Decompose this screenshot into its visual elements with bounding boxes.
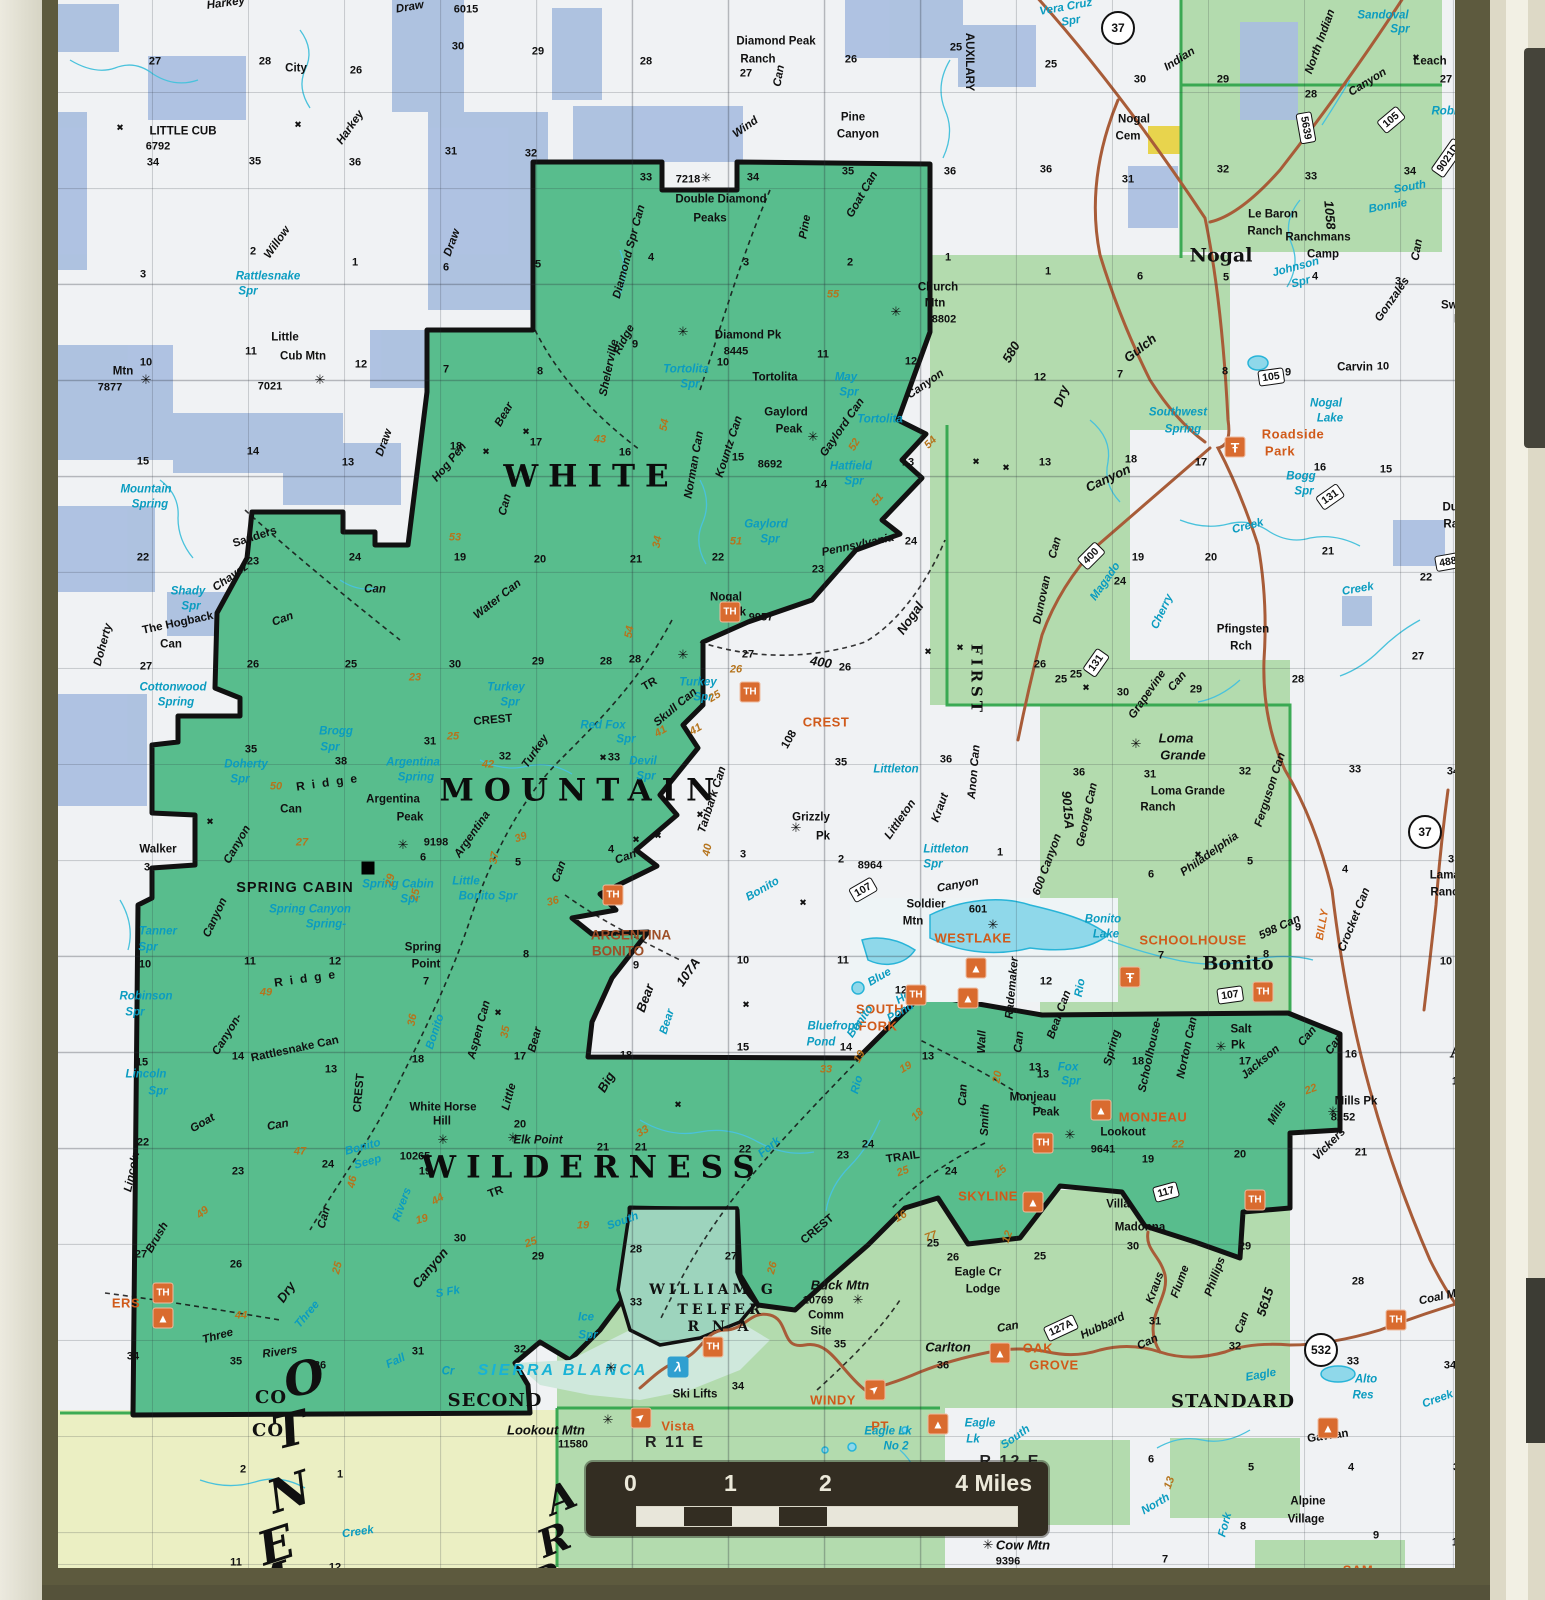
mine-marker: ✖ [599, 753, 607, 764]
map-label: 26 [247, 660, 259, 671]
map-label: Can [958, 1084, 970, 1106]
th-icon: TH [706, 1342, 719, 1353]
map-label: 36 [1040, 165, 1052, 176]
map-label: 9 [1285, 368, 1291, 379]
camp-icon: ▲ [994, 1346, 1006, 1360]
map-label: Ranch [1430, 887, 1455, 899]
mine-marker: ✖ [742, 1000, 750, 1011]
mine-icon: ✖ [972, 457, 980, 468]
th-marker: TH [1033, 1133, 1054, 1154]
th-marker: TH [720, 602, 741, 623]
map-label: Nogal [1190, 247, 1253, 266]
map-label: 16 [1314, 463, 1326, 474]
map-label: CREST [803, 716, 850, 729]
map-label: Vista [661, 1420, 694, 1433]
mine-icon: ✖ [494, 1008, 502, 1019]
map-label: 31 [445, 147, 457, 158]
map-label: 3 [1395, 277, 1401, 288]
map-label: Spr [680, 379, 699, 391]
map-label: Canyon [837, 129, 879, 141]
peak-icon: ✳ [606, 1360, 617, 1376]
map-label: 28 [629, 655, 641, 666]
map-label: Pk [816, 831, 830, 843]
map-label: 38 [335, 757, 347, 768]
map-label: ARGENTINA [591, 928, 671, 942]
map-label: 14 [840, 1043, 852, 1054]
map-label: 17 [514, 1052, 526, 1063]
map-label: Site [810, 1326, 831, 1338]
map-label: 17 [1195, 458, 1207, 469]
map-label: 35 [842, 167, 854, 178]
map-label: 29 [1239, 1242, 1251, 1253]
map-label: 33 [1347, 1357, 1359, 1368]
map-label: 10 [717, 358, 729, 369]
map-label: Ski Lifts [673, 1389, 718, 1401]
map-label: 3 [743, 258, 749, 269]
peak-marker: ✳ [701, 170, 712, 186]
map-label: FIRST [969, 644, 984, 716]
peak-marker: ✳ [853, 1292, 864, 1308]
mine-icon: ✖ [956, 643, 964, 654]
map-label: 10769 [803, 1296, 834, 1307]
map-label: 13 [902, 458, 914, 469]
map-label: Wall [977, 1030, 989, 1054]
map-label: 6 [1148, 870, 1154, 881]
highway-shield: 532 [1304, 1333, 1338, 1367]
scale-bar-segment [684, 1507, 732, 1526]
map-label: 6 [443, 263, 449, 274]
map-label: 43 [594, 435, 606, 446]
map-label: 22 [739, 1145, 751, 1156]
scale-bar: 4 Miles 012 [586, 1462, 1048, 1536]
map-label: 22 [712, 553, 724, 564]
map-label: Spr [923, 859, 942, 871]
peak-marker: ✳ [508, 1130, 519, 1146]
map-label: 34 [1444, 1361, 1455, 1372]
map-label: 12 [1040, 977, 1052, 988]
map-label: Can [160, 639, 182, 651]
camp-marker: ▲ [1318, 1418, 1339, 1439]
map-label: SKYLINE [958, 1190, 1018, 1203]
map-label: 7 [1117, 370, 1123, 381]
map-label: Gaylord [744, 519, 787, 531]
map-label: 3 [144, 863, 150, 874]
map-label: 7877 [98, 383, 122, 394]
map-label: 7021 [258, 382, 282, 393]
map-label: 9198 [424, 838, 448, 849]
map-label: 34 [127, 1352, 139, 1363]
map-label: 30 [1127, 1242, 1139, 1253]
map-label: Sandoval [1357, 10, 1408, 22]
map-label: Pine [841, 112, 865, 124]
map-label: 36 [1073, 768, 1085, 779]
scale-bar-segment [732, 1507, 779, 1526]
map-label: 5 [1223, 273, 1229, 284]
camp-marker: ▲ [928, 1414, 949, 1435]
map-label: 32 [1239, 767, 1251, 778]
map-label: Hatfield [830, 461, 872, 473]
mine-marker: ✖ [1412, 53, 1420, 64]
map-label: Cow Mtn [996, 1539, 1050, 1552]
map-label: Soldier [907, 899, 946, 911]
map-label: Littleton [873, 764, 918, 776]
map-label: 34 [652, 535, 665, 549]
map-label: Mtn [903, 916, 923, 928]
picnic-marker: Ŧ [1120, 967, 1141, 988]
peak-icon: ✳ [398, 837, 409, 853]
map-label: Spr [138, 942, 157, 954]
map-label: 1 [337, 1470, 343, 1481]
map-label: 3 [1448, 855, 1454, 866]
map-label: Rattlesnake [236, 271, 301, 283]
map-label: 34 [732, 1382, 744, 1393]
map-label: Spr [578, 1330, 597, 1342]
peak-icon: ✳ [891, 304, 902, 320]
map-label: 24 [862, 1140, 874, 1151]
mine-marker: ✖ [956, 643, 964, 654]
map-label: 25 [1034, 1252, 1046, 1263]
camp-icon: ▲ [1027, 1195, 1039, 1209]
map-label: Mtn [925, 298, 945, 310]
map-label: Spr [844, 476, 863, 488]
map-label: 10 [140, 358, 152, 369]
map-label: 33 [1349, 765, 1361, 776]
map-label: 7 [443, 365, 449, 376]
th-marker: TH [1245, 1190, 1266, 1211]
map-label: Ranch [740, 54, 775, 66]
map-label: 4 [1348, 1463, 1354, 1474]
camp-marker: ▲ [1091, 1100, 1112, 1121]
peak-marker: ✳ [678, 324, 689, 340]
mine-marker: ✖ [1002, 463, 1010, 474]
map-label: 27 [725, 1252, 737, 1263]
map-label: GROVE [1029, 1359, 1078, 1372]
map-label: Spring Cabin [362, 879, 434, 891]
map-label: 25 [1045, 60, 1057, 71]
map-label: 34 [747, 173, 759, 184]
camp-icon: ▲ [1095, 1103, 1107, 1117]
picnic-icon: Ŧ [1231, 439, 1240, 455]
map-label: Dutton [1442, 502, 1455, 514]
map-label: Eagle [965, 1418, 996, 1430]
map-label: Spring- [306, 919, 346, 931]
map-label: Nogal [1310, 398, 1342, 410]
map-label: Can [364, 584, 386, 596]
map-label: SIERRA BLANCA [478, 1363, 649, 1379]
map-label: 24 [1114, 577, 1126, 588]
map-label: 5 [535, 260, 541, 271]
map-label: 30 [1134, 75, 1146, 86]
map-label: 13 [342, 458, 354, 469]
map-label: Spring [398, 772, 434, 784]
map-label: Ranchmans [1285, 232, 1350, 244]
mine-marker: ✖ [522, 427, 530, 438]
map-label: Point [412, 959, 441, 971]
sq-marker [362, 862, 375, 875]
map-label: 9015A [1060, 790, 1076, 829]
peak-icon: ✳ [988, 917, 999, 933]
map-label: Lincoln [126, 1069, 167, 1081]
map-label: 601 [969, 905, 987, 916]
map-label: 31 [412, 1347, 424, 1358]
map-label: Spr [1390, 24, 1409, 36]
mine-marker: ✖ [482, 447, 490, 458]
map-label: 1058 [1322, 200, 1337, 230]
mine-marker: ✖ [696, 810, 704, 821]
map-label: 10 [1452, 1538, 1455, 1549]
map-label: 12 [1034, 373, 1046, 384]
th-icon: TH [1036, 1138, 1049, 1149]
map-label: 5 [515, 858, 521, 869]
mine-icon: ✖ [1082, 683, 1090, 694]
camp-icon: ▲ [157, 1311, 169, 1325]
map-frame-border-bottom [42, 1585, 1490, 1600]
peak-marker: ✳ [438, 1132, 449, 1148]
map-label: Lookout Mtn [507, 1424, 585, 1437]
map-label: AUXILARY [962, 33, 974, 91]
map-label: Mountain [120, 484, 171, 496]
map-label: Peaks [693, 213, 726, 225]
map-label: Red Fox [580, 720, 625, 732]
map-label: Tortolita [752, 372, 797, 384]
map-label: Carvin [1337, 362, 1373, 374]
mine-marker: ✖ [1194, 850, 1202, 861]
map-label: Cottonwood [139, 682, 206, 694]
map-label: Shady [171, 586, 206, 598]
th-marker: TH [603, 885, 624, 906]
map-label: 36 [940, 755, 952, 766]
map-label: Hill [1454, 314, 1455, 326]
map-label: Ranch [1443, 519, 1455, 531]
map-label: 22 [1172, 1140, 1184, 1151]
map-label: Park [1265, 445, 1295, 458]
map-label: 5 [1248, 1463, 1254, 1474]
peak-marker: ✳ [398, 837, 409, 853]
map-label: Alpine [1290, 1496, 1325, 1508]
camp-marker: ▲ [990, 1343, 1011, 1364]
ski-icon: λ [674, 1360, 681, 1375]
map-label: 22 [137, 553, 149, 564]
map-label: 1 [945, 253, 951, 264]
camp-marker: ▲ [1023, 1192, 1044, 1213]
camp-icon: ▲ [962, 991, 974, 1005]
map-label: Cr [442, 1366, 455, 1378]
map-label: 2 [847, 258, 853, 269]
map-label: 10 [737, 956, 749, 967]
map-label: 4 [608, 845, 614, 856]
th-icon: TH [1248, 1195, 1261, 1206]
peak-icon: ✳ [678, 647, 689, 663]
mine-icon: ✖ [206, 817, 214, 828]
map-label: Loma Grande [1151, 786, 1225, 798]
map-label: TELFER [677, 1303, 764, 1317]
picnic-marker: Ŧ [1225, 437, 1246, 458]
map-label: WILLIAM G [649, 1283, 777, 1297]
peak-marker: ✳ [678, 647, 689, 663]
map-label: 32 [525, 149, 537, 160]
map-label: 11 [245, 347, 257, 358]
map-label: 29 [532, 1252, 544, 1263]
map-label: 22 [137, 1138, 149, 1149]
scale-bar-segment [779, 1507, 827, 1526]
peak-icon: ✳ [141, 372, 152, 388]
map-label: 44 [235, 1311, 247, 1322]
map-label: SCHOOLHOUSE [1139, 934, 1246, 947]
map-label: 46 [347, 1175, 360, 1189]
map-label: Spring [405, 942, 441, 954]
map-label: 26 [947, 1253, 959, 1264]
peak-icon: ✳ [808, 429, 819, 445]
map-label: 36 [349, 158, 361, 169]
map-label: White Horse [409, 1102, 476, 1114]
map-label: 18 [450, 442, 462, 453]
map-label: Rch [1230, 641, 1252, 653]
mine-marker: ✖ [116, 123, 124, 134]
map-label: 21 [630, 555, 642, 566]
camp-marker: ▲ [966, 958, 987, 979]
map-label: Can [280, 804, 302, 816]
map-label: 24 [349, 553, 361, 564]
map-label: Hill [433, 1116, 451, 1128]
map-label: 27 [296, 838, 308, 849]
map-label: 9957 [749, 613, 773, 624]
peak-marker: ✳ [141, 372, 152, 388]
map-label: 22 [1420, 573, 1432, 584]
mine-icon: ✖ [294, 120, 302, 131]
map-label: 20 [1205, 553, 1217, 564]
map-label: 27 [742, 650, 754, 661]
map-label: 29 [532, 657, 544, 668]
map-label: 7 [1158, 951, 1164, 962]
view-marker: ➤ [631, 1408, 652, 1429]
map-label: 19 [454, 553, 466, 564]
map-label: 8964 [858, 861, 882, 872]
map-label: 54 [659, 418, 672, 432]
map-label: WESTLAKE [935, 932, 1012, 945]
ski-marker: λ [668, 1357, 689, 1378]
map-label: Turkey [487, 682, 525, 694]
forest-map-photo: HarkeyDraw6015Diamond PeakRanch27Vera Cr… [0, 0, 1545, 1600]
map-label: 26 [839, 663, 851, 674]
map-label: Peak [397, 812, 424, 824]
map-label: 21 [1322, 547, 1334, 558]
map-label: Pond [807, 1037, 836, 1049]
mine-icon: ✖ [696, 810, 704, 821]
map-label: 35 [230, 1357, 242, 1368]
map-label: 10 [139, 960, 151, 971]
peak-marker: ✳ [606, 1360, 617, 1376]
map-label: 9 [1295, 923, 1301, 934]
map-label: 8 [537, 367, 543, 378]
map-label: BONITO [592, 944, 644, 958]
scale-bar-ticks: 4 Miles 012 [586, 1470, 1048, 1496]
scale-bar-segment [637, 1507, 684, 1526]
map-label: Bluefront [807, 1021, 858, 1033]
map-label: Diamond Pk [715, 330, 781, 342]
map-label: 5 [1247, 857, 1253, 868]
map-label: 16 [619, 448, 631, 459]
map-label: 3 [140, 270, 146, 281]
map-label: Ice [578, 1312, 594, 1324]
map-label: Little [452, 876, 479, 888]
map-label: 50 [270, 782, 282, 793]
map-label: MONJEAU [1119, 1111, 1188, 1124]
map-label: Church [918, 282, 958, 294]
map-label: SECOND [448, 1392, 543, 1410]
map-label: 14 [815, 480, 827, 491]
map-label: Argentina [386, 757, 440, 769]
map-label: 25 [1070, 670, 1082, 681]
map-label: 32 [499, 752, 511, 763]
map-label: 35 [249, 157, 261, 168]
map-label: Mtn [113, 366, 133, 378]
map-label: 34 [1447, 767, 1455, 778]
peak-marker: ✳ [1065, 1127, 1076, 1143]
map-label: 31 [424, 737, 436, 748]
map-label: 1 [1045, 267, 1051, 278]
map-label: Elk Point [513, 1135, 562, 1147]
map-label: Robinson [119, 991, 172, 1003]
map-label: 27 [140, 662, 152, 673]
map-label: Spr [238, 286, 257, 298]
map-label: MOUNTAIN [440, 776, 725, 807]
map-label: 9396 [996, 1557, 1020, 1568]
map-label: Carlton [925, 1341, 971, 1354]
mine-icon: ✖ [742, 1000, 750, 1011]
map-label: 2 [838, 855, 844, 866]
camp-icon: ▲ [932, 1417, 944, 1431]
map-label: 8 [1222, 367, 1228, 378]
map-label: Spr [1294, 486, 1313, 498]
map-label: OAK [1023, 1342, 1053, 1355]
map-label: Littleton [923, 844, 968, 856]
map-label: 29 [1190, 685, 1202, 696]
map-label: 20 [534, 555, 546, 566]
map-label: Spr [616, 734, 635, 746]
mine-marker: ✖ [674, 1100, 682, 1111]
map-label: Comm [808, 1310, 844, 1322]
peak-marker: ✳ [1216, 1039, 1227, 1055]
mine-icon: ✖ [799, 898, 807, 909]
map-label: 12 [329, 1563, 341, 1569]
map-label: 29 [385, 873, 398, 887]
map-label: 25 [447, 732, 459, 743]
map-label: Spring [132, 499, 168, 511]
map-label: Swan [1441, 300, 1455, 312]
scale-bar-segments [636, 1506, 1018, 1527]
mine-icon: ✖ [632, 835, 640, 846]
th-marker: TH [906, 985, 927, 1006]
map-label: Argentina [366, 794, 420, 806]
mine-marker: ✖ [924, 647, 932, 658]
map-label: Village [1288, 1514, 1325, 1526]
map-label: Fox [1058, 1062, 1078, 1074]
peak-icon: ✳ [603, 1412, 614, 1428]
scale-bar-end-label: 4 Miles [955, 1470, 1032, 1497]
map-label: 30 [449, 660, 461, 671]
map-label: 9 [633, 961, 639, 972]
map-label: 11 [837, 956, 849, 967]
highway-shield: 37 [1101, 11, 1135, 45]
highway-shield: 37 [1408, 815, 1442, 849]
map-label: 3 [740, 850, 746, 861]
map-label: 35 [500, 1025, 513, 1039]
map-label: 28 [259, 57, 271, 68]
map-label: 28 [1292, 675, 1304, 686]
mine-icon: ✖ [116, 123, 124, 134]
map-label: 47 [294, 1147, 306, 1158]
map-label: 24 [322, 1160, 334, 1171]
